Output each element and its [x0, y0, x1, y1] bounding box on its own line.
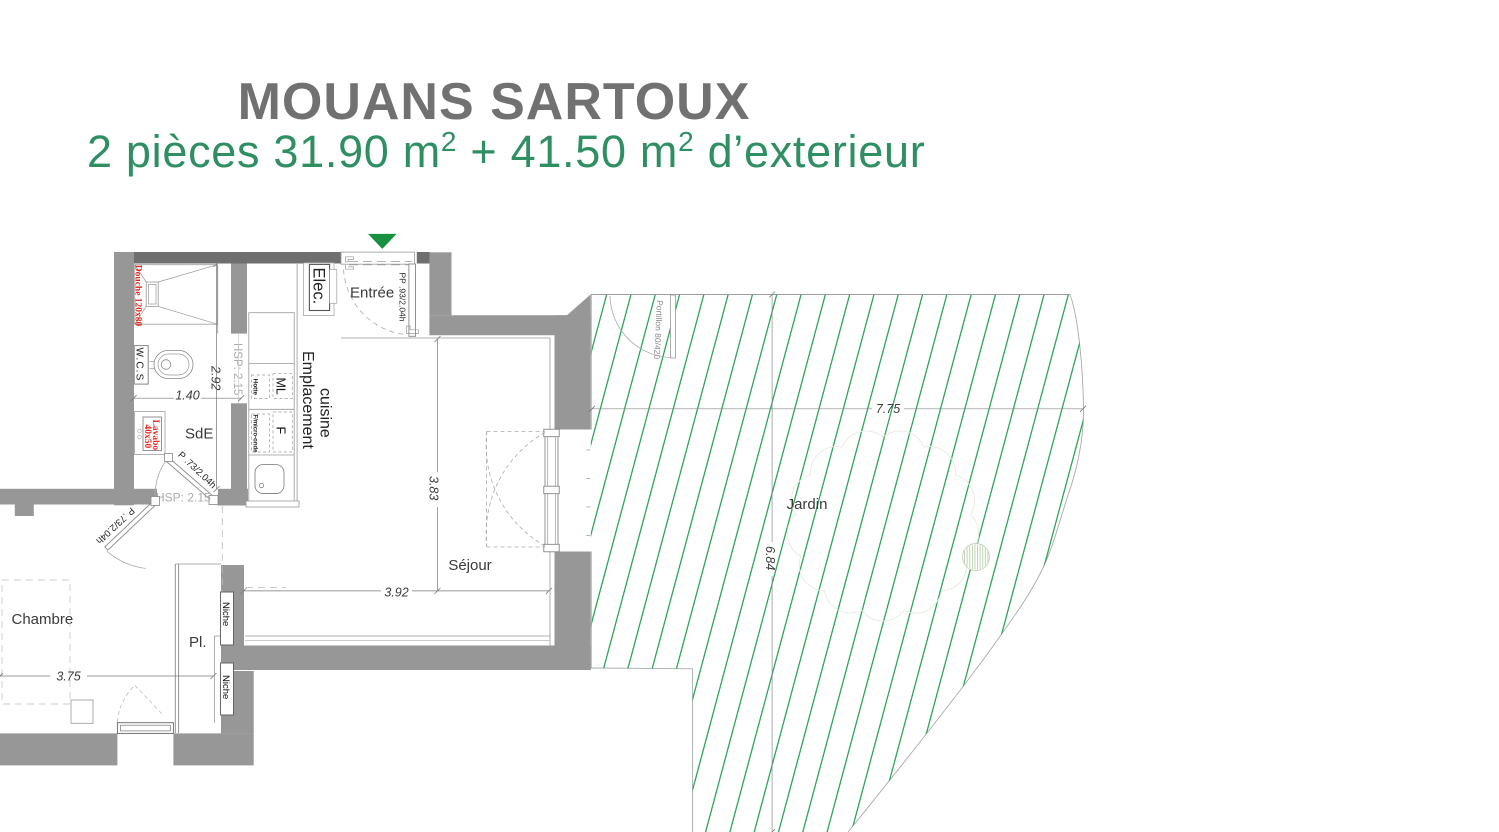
svg-text:Jardin: Jardin: [787, 496, 828, 513]
svg-text:2 pièces 31.90 m2 + 41.50 m2 d: 2 pièces 31.90 m2 + 41.50 m2 d’exterieur: [87, 126, 925, 177]
svg-text:7.75: 7.75: [876, 402, 900, 416]
svg-text:MOUANS SARTOUX: MOUANS SARTOUX: [238, 73, 751, 131]
svg-text:Séjour: Séjour: [448, 557, 491, 574]
svg-text:F: F: [274, 427, 288, 435]
svg-text:Emplacement: Emplacement: [299, 351, 316, 449]
svg-text:Chambre: Chambre: [12, 611, 74, 628]
svg-text:3.92: 3.92: [384, 586, 408, 600]
svg-text:2.92: 2.92: [209, 365, 223, 390]
svg-text:1.40: 1.40: [175, 389, 199, 403]
svg-text:Niche: Niche: [220, 675, 231, 699]
svg-text:W.C.S: W.C.S: [134, 348, 145, 382]
svg-text:HSP: 2.15: HSP: 2.15: [156, 491, 211, 505]
svg-text:3.83: 3.83: [427, 476, 441, 500]
svg-text:6.84: 6.84: [763, 546, 777, 570]
svg-text:cuisine: cuisine: [317, 388, 334, 438]
svg-text:Douche 120x80: Douche 120x80: [133, 265, 143, 327]
svg-text:Entrée: Entrée: [350, 285, 394, 302]
svg-text:F/micro-onde: F/micro-onde: [252, 415, 258, 454]
svg-text:Hotte: Hotte: [252, 379, 259, 396]
svg-text:Pl.: Pl.: [189, 634, 207, 651]
svg-text:HSP: 2.15: HSP: 2.15: [231, 343, 243, 395]
svg-text:Niche: Niche: [220, 602, 231, 626]
svg-text:Elec.: Elec.: [310, 268, 328, 305]
svg-text:40x50: 40x50: [142, 425, 152, 449]
svg-text:SdE: SdE: [185, 426, 213, 443]
svg-text:PP .93/2.04h: PP .93/2.04h: [398, 273, 408, 322]
svg-text:3.75: 3.75: [56, 670, 80, 684]
svg-text:ML: ML: [274, 378, 288, 395]
